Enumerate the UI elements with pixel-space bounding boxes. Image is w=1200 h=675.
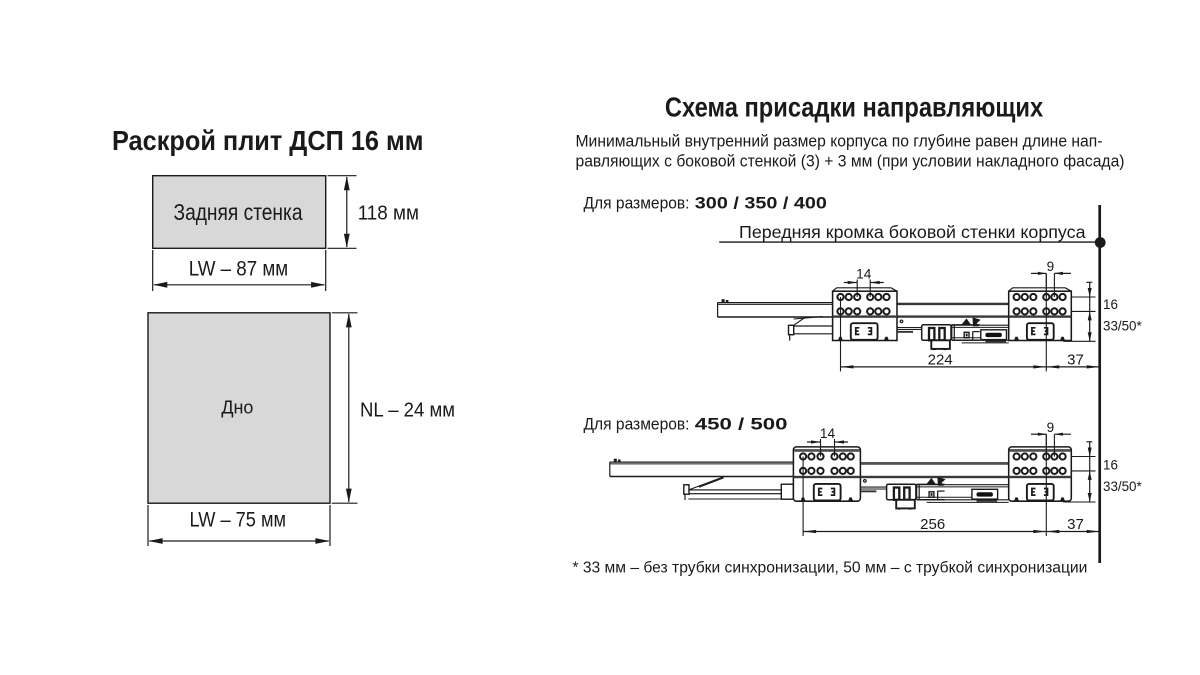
svg-text:Для размеров:: Для размеров: xyxy=(584,194,690,213)
svg-text:* 33 мм – без трубки синхрониз: * 33 мм – без трубки синхронизации, 50 м… xyxy=(572,559,1087,576)
svg-text:118 мм: 118 мм xyxy=(358,201,419,224)
svg-text:33/50*: 33/50* xyxy=(1103,479,1142,494)
svg-text:9: 9 xyxy=(1047,420,1055,435)
svg-text:37: 37 xyxy=(1067,351,1084,368)
svg-text:16: 16 xyxy=(1103,458,1118,473)
svg-text:16: 16 xyxy=(1103,297,1118,312)
svg-text:9: 9 xyxy=(1047,259,1055,274)
svg-text:Задняя стенка: Задняя стенка xyxy=(174,199,303,225)
svg-text:Дно: Дно xyxy=(221,396,253,417)
svg-text:Передняя кромка боковой стенки: Передняя кромка боковой стенки корпуса xyxy=(739,222,1086,242)
svg-text:256: 256 xyxy=(920,516,945,533)
svg-text:14: 14 xyxy=(856,267,872,282)
svg-text:450 / 500: 450 / 500 xyxy=(695,415,788,434)
svg-text:300 / 350 / 400: 300 / 350 / 400 xyxy=(695,194,827,213)
svg-text:Схема присадки направляющих: Схема присадки направляющих xyxy=(665,92,1044,123)
svg-text:равляющих с боковой стенкой (3: равляющих с боковой стенкой (3) + 3 мм (… xyxy=(576,152,1125,171)
svg-text:Для размеров:: Для размеров: xyxy=(584,415,690,434)
svg-text:NL – 24 мм: NL – 24 мм xyxy=(360,399,455,421)
svg-text:33/50*: 33/50* xyxy=(1103,318,1142,333)
svg-text:14: 14 xyxy=(820,426,836,441)
svg-text:Минимальный внутренний размер: Минимальный внутренний размер корпуса по… xyxy=(576,132,1103,151)
svg-text:224: 224 xyxy=(928,351,953,368)
svg-text:LW – 87 мм: LW – 87 мм xyxy=(189,257,289,281)
svg-text:LW – 75 мм: LW – 75 мм xyxy=(190,509,287,532)
svg-text:37: 37 xyxy=(1067,516,1084,533)
svg-text:Раскрой плит ДСП 16 мм: Раскрой плит ДСП 16 мм xyxy=(112,125,424,156)
